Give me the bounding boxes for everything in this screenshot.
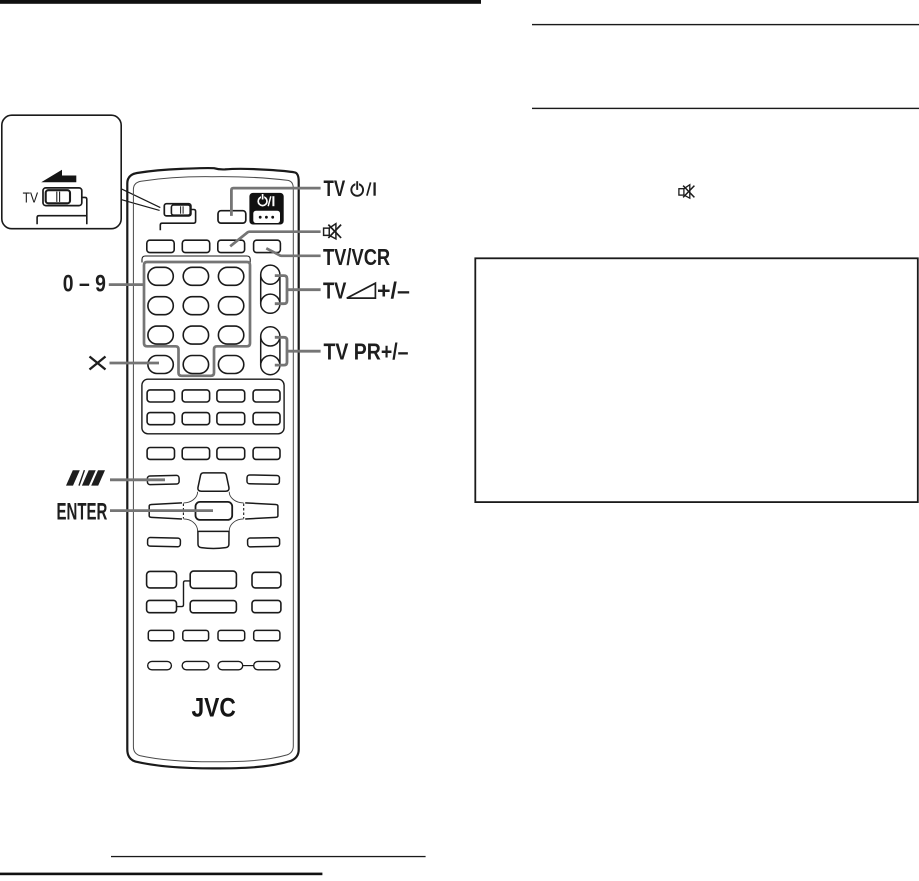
svg-text:TV: TV [324,177,346,202]
svg-text:TV: TV [323,279,346,305]
svg-text:+/–: +/– [377,278,410,304]
svg-text:ENTER: ENTER [57,499,108,525]
svg-text:JVC: JVC [192,694,236,723]
svg-text:TV: TV [23,189,39,206]
svg-text:0 – 9: 0 – 9 [63,269,106,297]
svg-text:TV PR+/–: TV PR+/– [324,339,409,365]
svg-text:TV/VCR: TV/VCR [323,245,390,271]
